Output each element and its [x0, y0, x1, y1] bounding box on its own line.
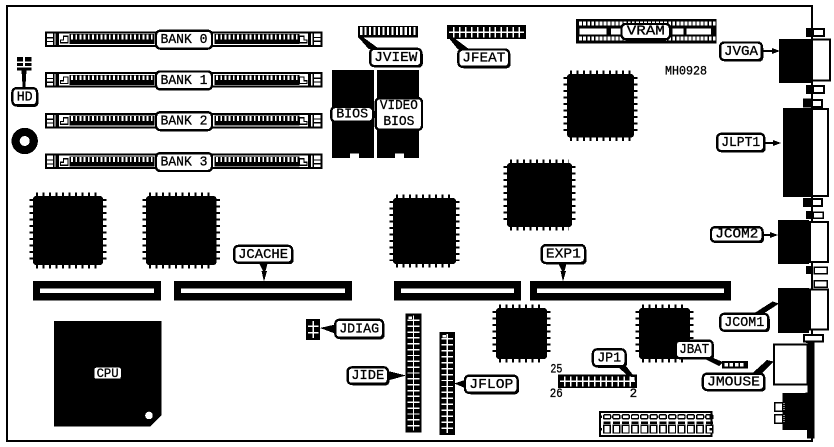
svg-text:CPU: CPU [97, 366, 119, 381]
svg-text:25: 25 [550, 363, 562, 377]
svg-text:BIOS: BIOS [383, 115, 414, 130]
svg-text:JCOM2: JCOM2 [715, 227, 758, 242]
svg-text:MH0928: MH0928 [665, 63, 707, 78]
svg-text:BIOS: BIOS [336, 107, 368, 122]
svg-text:JCACHE: JCACHE [238, 247, 288, 263]
svg-text:JVGA: JVGA [724, 44, 759, 60]
svg-text:JBAT: JBAT [679, 342, 709, 358]
svg-text:26: 26 [550, 387, 563, 401]
svg-text:JIDE: JIDE [351, 368, 384, 384]
svg-text:JDIAG: JDIAG [339, 321, 379, 337]
svg-text:VRAM: VRAM [627, 25, 665, 40]
svg-text:HD: HD [17, 89, 33, 105]
svg-text:BANK 0: BANK 0 [161, 32, 208, 48]
svg-text:BANK 3: BANK 3 [161, 155, 208, 171]
svg-text:JLPT1: JLPT1 [721, 135, 760, 151]
svg-text:JFLOP: JFLOP [469, 377, 513, 393]
svg-text:BANK 1: BANK 1 [161, 73, 208, 89]
svg-text:2: 2 [630, 387, 638, 401]
svg-text:VIDEO: VIDEO [380, 99, 418, 114]
svg-text:JMOUSE: JMOUSE [707, 374, 760, 390]
svg-text:JCOM1: JCOM1 [724, 315, 764, 331]
svg-text:EXP1: EXP1 [546, 247, 581, 263]
svg-text:BANK 2: BANK 2 [161, 114, 208, 130]
svg-text:JFEAT: JFEAT [462, 51, 505, 67]
svg-text:JVIEW: JVIEW [374, 50, 418, 66]
svg-text:JP1: JP1 [597, 350, 621, 366]
